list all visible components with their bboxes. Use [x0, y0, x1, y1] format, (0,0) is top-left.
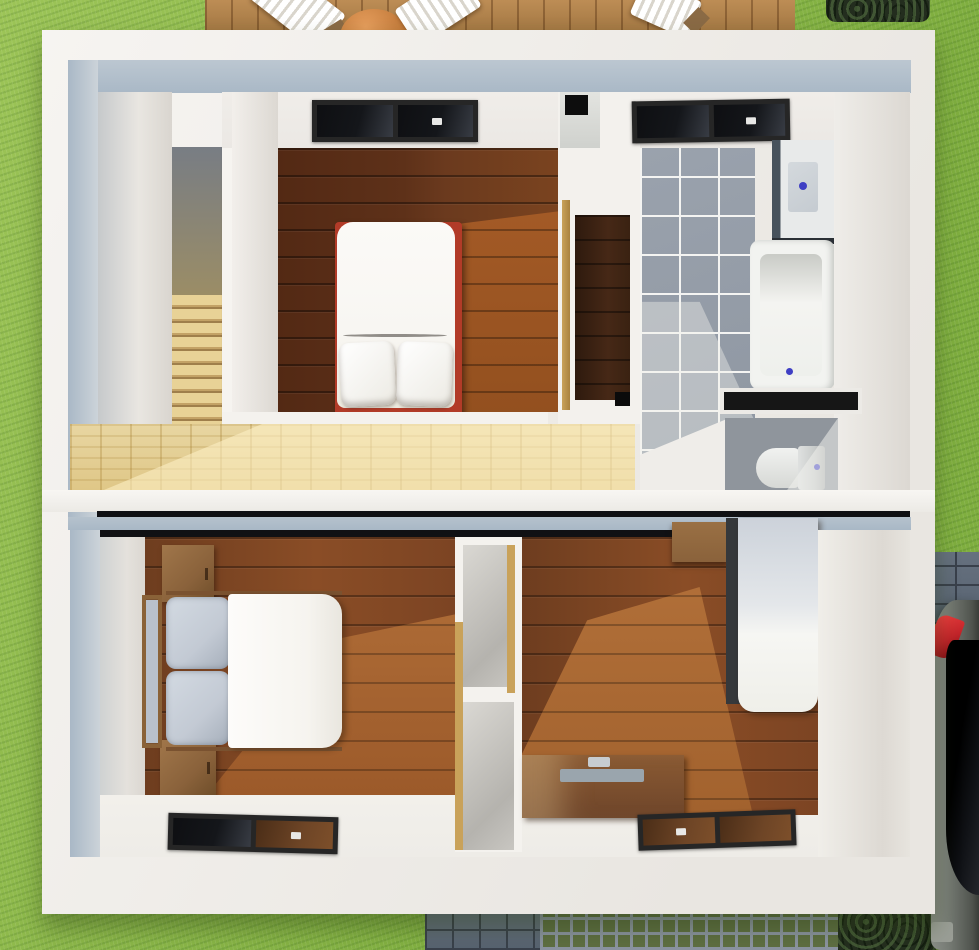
skylight-glass: [713, 104, 785, 137]
lower-floor: [70, 530, 910, 857]
single-bed: [726, 518, 818, 712]
pillow: [166, 671, 230, 745]
bedroom3-wall: [818, 530, 910, 857]
floor-vent: [615, 392, 630, 406]
skylight-window: [312, 100, 478, 142]
stairwell-shadow: [172, 147, 222, 295]
open-door: [562, 200, 570, 410]
deck-chair: [394, 0, 482, 33]
double-bed: [228, 594, 342, 748]
window-handle-icon: [676, 828, 686, 835]
mattress: [738, 518, 818, 712]
toilet-cistern: [798, 446, 825, 490]
grass-grid-pavers: [540, 910, 838, 950]
stair-wall: [222, 147, 232, 432]
landing-floor: [70, 424, 635, 490]
bathroom-wall: [834, 92, 910, 490]
shelf-edge: [455, 622, 463, 850]
bathtub: [750, 240, 835, 390]
deck-chair: [250, 0, 346, 33]
car-window: [946, 640, 979, 895]
pillow: [166, 597, 230, 669]
deck-chair: [630, 0, 703, 33]
upper-floor: [70, 92, 910, 490]
skylight-glass: [317, 105, 393, 137]
inner-wall-left: [70, 530, 100, 857]
desk: [522, 755, 684, 818]
shower-unit: [772, 140, 834, 238]
window-glass: [719, 814, 791, 842]
window-handle-icon: [432, 118, 442, 125]
double-bed-red: [335, 222, 462, 418]
parked-car: [931, 600, 979, 950]
window-handle-icon: [291, 832, 301, 839]
window-glass: [255, 820, 333, 849]
wc-room: [725, 418, 838, 490]
threshold: [222, 412, 548, 424]
pillow: [396, 341, 453, 407]
flush-button: [814, 464, 820, 470]
floor-window: [168, 813, 339, 854]
window-glass: [173, 818, 251, 847]
staircase: [172, 295, 222, 435]
wardrobe-nook: [558, 92, 640, 424]
headboard: [142, 595, 162, 748]
shower-drain: [799, 182, 807, 190]
open-shelving: [455, 537, 522, 852]
shelf-edge: [507, 545, 515, 693]
storage-niche: [720, 388, 862, 414]
skylight-glass: [398, 105, 474, 137]
window-glass: [643, 817, 715, 845]
bathtub-drain: [786, 368, 793, 375]
hedge: [826, 0, 930, 22]
bedroom2-wall: [100, 530, 145, 795]
desk-object: [588, 757, 610, 767]
house-cutaway: [42, 30, 935, 914]
wall-cabinet: [672, 522, 728, 562]
bedroom1-wall: [232, 92, 278, 412]
inner-wall-top: [68, 60, 911, 93]
toilet: [756, 448, 800, 488]
roof-deck: [205, 0, 795, 33]
window-handle-icon: [746, 117, 756, 124]
bathtub-basin: [760, 254, 822, 376]
chimney-flue: [565, 95, 588, 115]
car-sill: [931, 922, 953, 942]
floor-plan-render: [0, 0, 979, 950]
shelf-compartment: [463, 702, 514, 850]
skylight-glass: [637, 105, 709, 138]
wardrobe-floor: [575, 215, 630, 400]
desk-tray: [560, 769, 644, 782]
duvet-fold: [343, 334, 447, 337]
pillow: [338, 341, 396, 408]
floor-slab: [42, 490, 935, 512]
cobblestone-paving: [425, 910, 540, 950]
floor-window: [637, 809, 796, 850]
headboard-panel: [146, 600, 158, 743]
skylight-window: [632, 99, 791, 144]
